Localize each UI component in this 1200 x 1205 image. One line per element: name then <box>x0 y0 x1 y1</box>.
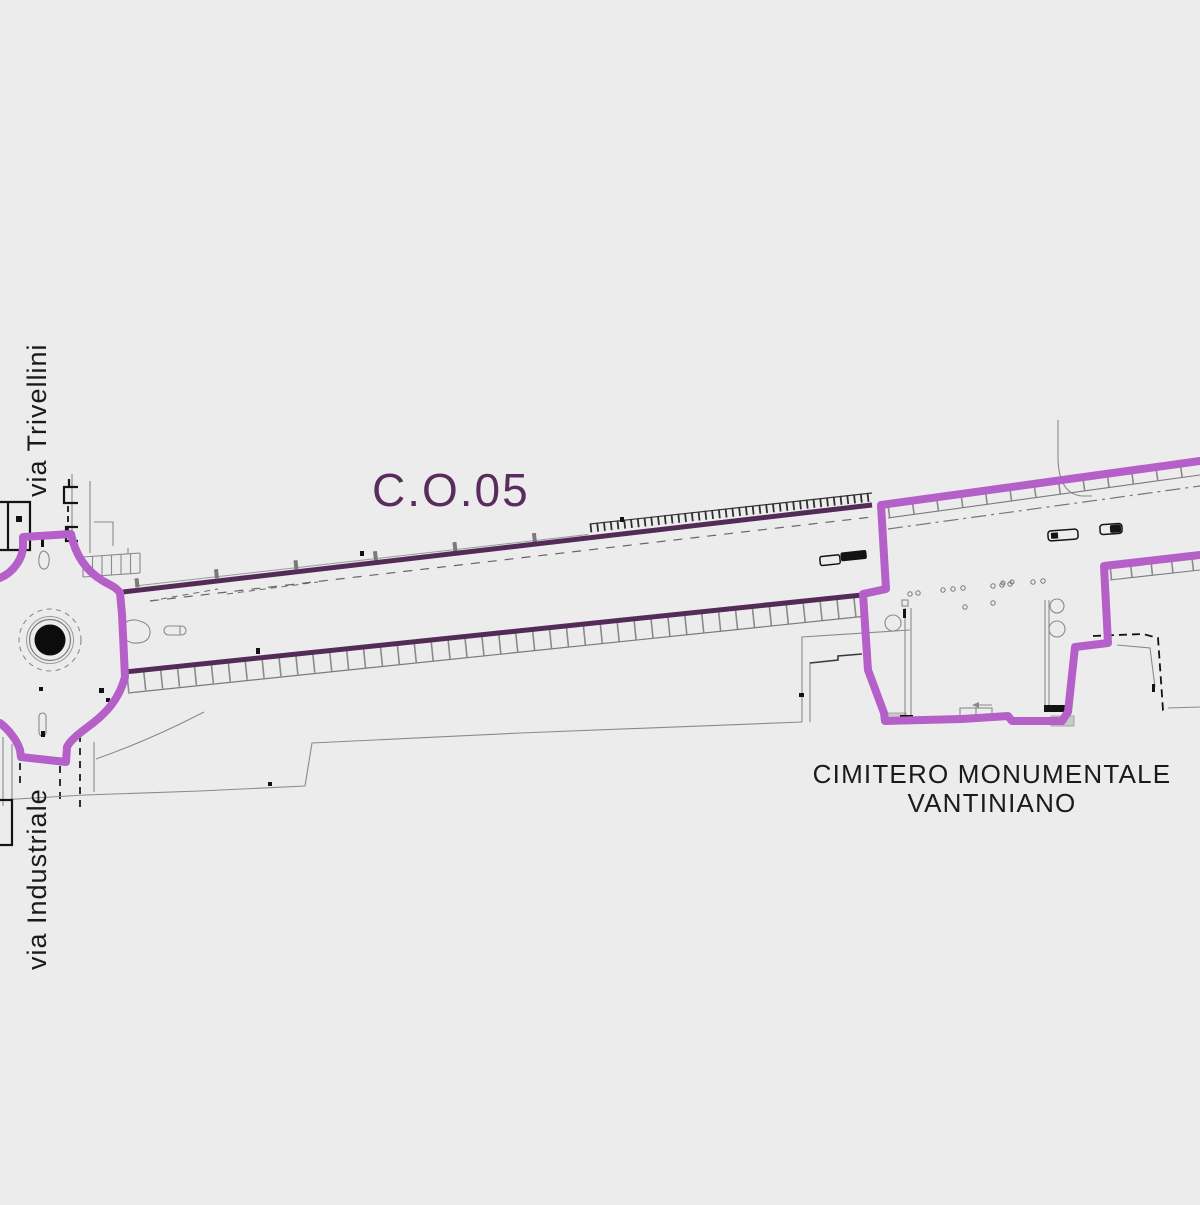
boundary-cemetery <box>863 461 1200 721</box>
roundabout-center-island <box>35 625 66 656</box>
via-trivellini-road-edges <box>72 474 113 553</box>
cemetery-label-line1: CIMITERO MONUMENTALE <box>813 759 1172 789</box>
vehicle-icon <box>819 550 867 566</box>
vehicle-icon <box>1048 529 1079 541</box>
street-label-via-trivellini: via Trivellini <box>22 343 52 497</box>
cemetery-label-line2: VANTINIANO <box>908 788 1077 818</box>
vehicle-icon <box>1100 523 1123 535</box>
street-label-via-industriale: via Industriale <box>22 788 52 970</box>
road-edge-south <box>125 595 862 672</box>
bollard-dots <box>908 579 1045 609</box>
site-plan-page: C.O.05 via Trivellini via Industriale CI… <box>0 0 1200 1200</box>
direction-arrow <box>972 702 979 708</box>
site-plan-map: C.O.05 via Trivellini via Industriale CI… <box>0 0 1200 1200</box>
parcel-boundary-lines <box>0 722 802 845</box>
road-edge-north <box>123 505 872 592</box>
project-code-label: C.O.05 <box>372 464 530 516</box>
map-labels: C.O.05 via Trivellini via Industriale CI… <box>22 343 1171 970</box>
project-boundary <box>0 461 1200 762</box>
cemetery-left-wing <box>799 600 913 722</box>
top-right-road-edge <box>1058 420 1092 496</box>
colonnade-south-edge <box>127 607 867 694</box>
